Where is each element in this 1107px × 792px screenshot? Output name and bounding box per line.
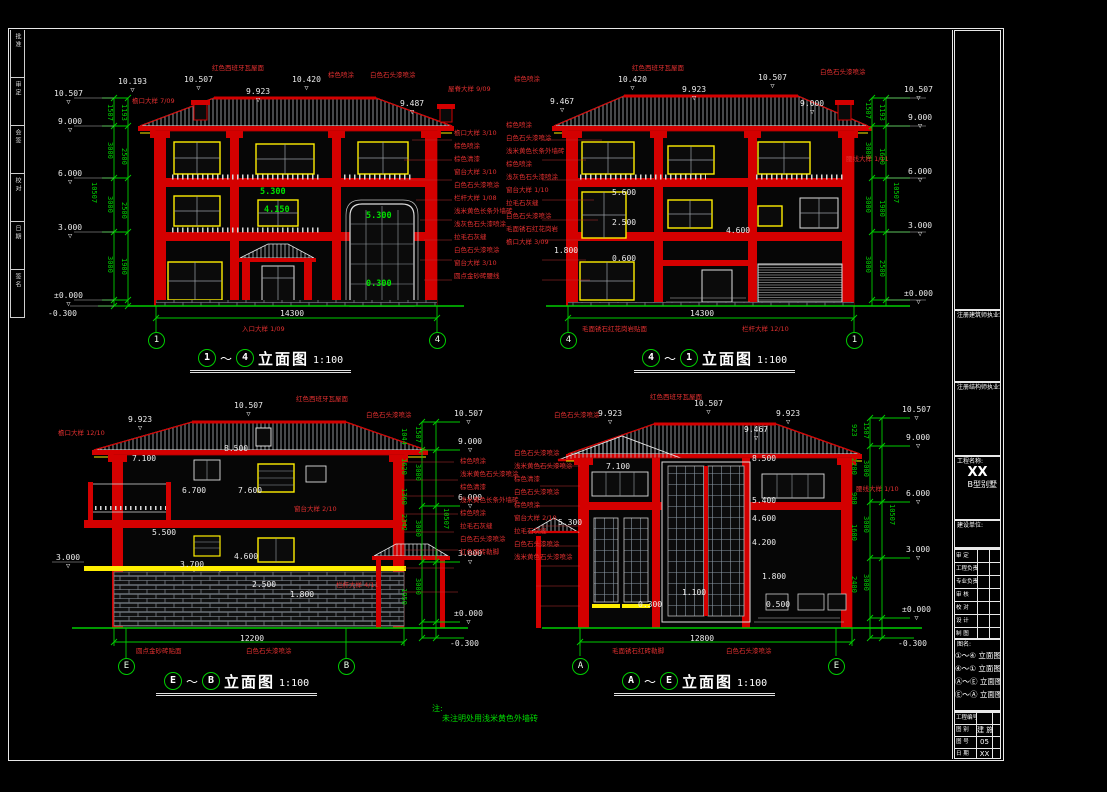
chain-dim-label: 3000 [864,256,871,273]
value-label: 4.600 [752,514,776,523]
top-dim-label: 9.000▽ [800,100,824,115]
signoff-row: 专业负责人 [955,575,1000,588]
material-callout: 白色石头漆喷涂 [370,72,416,79]
signoff-row: 校 对 [955,601,1000,614]
top-dim-label: 9.923▽ [246,88,270,103]
drawing-name-entry: Ⓔ～Ⓐ 立面图 [955,688,1000,701]
value-label: 5.600 [612,188,636,197]
level-label: -0.300 [898,640,927,648]
elevation-view-1-4: 10.193▽ 10.507▽ 9.923▽ 10.420▽ 9.487▽ 红色… [44,64,504,398]
material-callout: 白色石头漆喷涂 [460,536,510,543]
chain-dim-label: 3000 [862,574,869,591]
level-label: 9.000▽ [906,434,930,449]
view-title: 1～ 4 立面图 1:100 [190,349,351,373]
drawing-name-entry: Ⓐ～Ⓔ 立面图 [955,675,1000,688]
bottom-dim-label: 12800 [690,634,714,643]
material-callout: 棕色清漆 [514,476,556,483]
value-label: 7.100 [606,462,630,471]
value-label: 1.800 [290,590,314,599]
value-label: 4.200 [752,538,776,547]
roof-material-label: 红色西班牙瓦屋面 [632,65,684,72]
chain-dim-label: 1193 [878,104,885,121]
grid-bubble: B [202,672,220,690]
project-name-box: 工程名称: XX B型别墅 [954,456,1001,520]
signature-strip-row: 批准 [10,30,25,78]
chain-dim-label: 1507 [862,422,869,439]
drawing-sheet: 批准审定会签校对日期签名 [0,0,1107,792]
top-dim-label: 9.467▽ [550,98,574,113]
level-label: 9.000▽ [58,118,82,133]
level-label: 9.000▽ [908,114,932,129]
chain-dim-label: 2200 [850,458,857,475]
top-dim-label: 10.507▽ [184,76,213,91]
signoff-table: 审 定 工程负责人 专业负责人 审 核 [954,548,1001,639]
material-callout: 浅灰色石头漆喷涂 [454,221,504,228]
value-label: 5.300 [366,212,392,221]
material-callout-list: 白色石头漆喷涂浅米黄色石头漆喷涂棕色清漆白色石头漆喷涂棕色喷涂窗台大样 2/10… [514,450,556,561]
level-label: -0.300 [450,640,479,648]
detail-callout: 栏杆大样 4/11 [336,582,379,589]
elevation-view-A-E: 9.923▽ 10.507▽ 9.923▽ 9.467▽ 红色西班牙瓦屋面 白色… [514,396,952,700]
yellow-rail-band [84,566,406,571]
material-callout: 棕色喷涂 [328,72,354,79]
detail-callout: 入口大样 1/09 [242,326,285,333]
plinth [156,300,437,306]
chain-dim-label: 3000 [106,142,113,159]
material-callout-list: 棕色喷涂白色石头漆喷涂浅米黄色长条外墙砖棕色喷涂浅灰色石头漆喷涂窗台大样 1/1… [506,122,550,246]
detail-callout: 檐口大样 12/10 [58,430,105,437]
grid-bubble: 1 [846,332,863,349]
grid-bubble: 1 [198,349,216,367]
chain-dim-label: 3000 [414,578,421,595]
project-name: XX [955,466,1000,480]
material-callout: 拉毛石灰缝 [514,528,556,535]
architect-seal-box: 注册建筑师执业章 [954,310,1001,382]
elevation-view-4-1: 9.467▽ 10.420▽ 9.923▽ 10.507▽ 9.000▽ 红色西… [506,64,951,398]
chain-dim-label: 3000 [414,520,421,537]
value-label: 5.300 [558,518,582,527]
chain-dim-label: 2400 [850,576,857,593]
material-callout: 白色石头漆喷涂 [514,489,556,496]
material-callout: 毛面锈石红花岗岩贴面 [582,326,647,333]
material-callout: 浅灰色石头漆喷涂 [506,174,550,181]
material-callout: 浅米黄色石头漆喷涂 [514,463,556,470]
material-callout: 红色面砖勒脚 [460,549,510,556]
material-callout-list: 棕色喷涂浅米黄色石头漆喷涂棕色清漆浅米黄色长条外墙砖棕色喷涂拉毛石灰缝白色石头漆… [460,458,510,556]
chain-dim-label: 2342 [400,514,407,531]
value-label: 0.300 [638,600,662,609]
material-callout: 浅米黄色石头漆喷涂 [460,471,510,478]
top-dim-label: 10.507▽ [694,400,723,415]
chain-dim-label: 3000 [862,460,869,477]
signature-strip-row: 审定 [10,78,25,126]
material-callout: 棕色清漆 [460,484,510,491]
material-callout: 白色石头漆喷涂 [514,450,556,457]
chain-dim-label: 1600 [850,524,857,541]
grid-bubble: 4 [429,332,446,349]
value-label: 0.300 [366,280,392,289]
material-callout: 圆点金砂砖腰线 [454,273,504,280]
material-callout: 白色石头漆喷涂 [506,135,550,142]
level-label: 3.000▽ [58,224,82,239]
material-callout: 棕色喷涂 [506,122,550,129]
material-callout: 窗台大样 1/10 [506,187,550,194]
value-label: 3.700 [180,560,204,569]
signoff-row: 审 核 [955,588,1000,601]
material-callout: 浅米黄色石头漆喷涂 [514,554,556,561]
material-callout: 白色石头漆喷涂 [514,541,556,548]
title-block-blank [954,30,1001,310]
chain-dim-label: 1950 [400,588,407,605]
material-callout: 白色石头漆喷涂 [246,648,292,655]
value-label: 1.800 [554,246,578,255]
material-callout: 白色石头漆喷涂 [454,182,504,189]
value-label: 5.300 [260,188,286,197]
grid-bubble: A [572,658,589,675]
roof [558,424,862,461]
material-callout: 圆点金砂砖贴面 [136,648,182,655]
signature-strip-row: 会签 [10,126,25,174]
level-label: 9.000▽ [458,438,482,453]
chain-dim-label: 3000 [862,516,869,533]
level-label: 6.000▽ [908,168,932,183]
material-callout: 白色石头漆喷涂 [554,412,600,419]
material-callout: 白色石头漆喷涂 [820,69,866,76]
note: 注: 未注明处用浅米黄色外墙砖 [432,704,538,724]
value-label: 5.500 [152,528,176,537]
material-callout-list: 檐口大样 3/10棕色喷涂棕色清漆窗台大样 3/10白色石头漆喷涂栏杆大样 1/… [454,130,504,280]
signature-strip-row: 签名 [10,270,25,318]
material-callout: 棕色清漆 [454,156,504,163]
client-box: 建设单位: [954,520,1001,548]
note-text: 未注明处用浅米黄色外墙砖 [442,714,538,724]
grid-bubble: E [164,672,182,690]
top-dim-label: 9.487▽ [400,100,424,115]
material-callout: 白色石头漆喷涂 [506,213,550,220]
detail-callout: 窗台大样 2/10 [294,506,337,513]
value-label: 2.500 [252,580,276,589]
chain-dim-label: 2500 [878,260,885,277]
note-label: 注: [432,704,538,714]
material-callout: 棕色喷涂 [460,510,510,517]
bottom-dim-label: 14300 [280,309,304,318]
top-dim-label: 9.923▽ [128,416,152,431]
chain-dim-label: 923 [850,424,857,437]
chain-dim-label: 1620 [400,458,407,475]
material-callout: 白色石头漆喷涂 [726,648,772,655]
detail-callout: 屋脊大样 9/09 [448,86,491,93]
overall-dim-label: 10507 [90,182,97,203]
chain-dim-label: 3000 [864,196,871,213]
grid-bubble: 4 [560,332,577,349]
top-dim-label: 10.507▽ [234,402,263,417]
value-label: 7.100 [132,454,156,463]
overall-dim-label: 10507 [442,508,449,529]
top-dim-label: 10.193▽ [118,78,147,93]
roof-material-label: 红色西班牙瓦屋面 [650,394,702,401]
project-type: B型别墅 [955,480,1000,489]
view-title: 4～ 1 立面图 1:100 [634,349,795,373]
drawing-number-table: 工程编号 图 别 建 施 图 号 05 日 期 [954,711,1001,759]
chain-dim-label: 2500 [120,148,127,165]
material-callout: 拉毛石灰缝 [454,234,504,241]
material-callout: 檐口大样 3/10 [454,130,504,137]
detail-callout: 栏杆大样 12/10 [742,326,789,333]
level-label: 3.000▽ [906,546,930,561]
grid-bubble: B [338,658,355,675]
top-dim-label: 10.507▽ [758,74,787,89]
level-label: 10.507▽ [54,90,83,105]
material-callout: 拉毛石灰缝 [506,200,550,207]
value-label: 4.600 [726,226,750,235]
value-label: 4.600 [234,552,258,561]
signoff-row: 制 图 [955,627,1000,639]
chain-dim-label: 3000 [106,256,113,273]
signoff-row: 审 定 [955,549,1000,562]
signature-strip-row: 日期 [10,222,25,270]
drawing-number-row: 工程编号 [955,712,1000,724]
material-callout: 窗台大样 3/10 [454,169,504,176]
value-label: 1.100 [682,588,706,597]
view-title: E～ B 立面图 1:100 [156,672,317,696]
material-callout: 浅米黄色长条外墙砖 [506,148,550,155]
material-callout: 白色石头漆喷涂 [366,412,412,419]
material-callout: 窗台大样 2/10 [514,515,556,522]
level-label: 3.000▽ [908,222,932,237]
signoff-row: 设 计 [955,614,1000,627]
grid-bubble: 1 [148,332,165,349]
stair-window-stack [662,462,750,622]
level-label: 3.000▽ [56,554,80,569]
chain-dim-label: 3000 [414,464,421,481]
drawing-number-row: 图 别 建 施 [955,724,1000,736]
chain-dim-label: 1360 [400,488,407,505]
detail-callout: 腰线大样 1/10 [856,486,899,493]
level-label: ±0.000▽ [904,290,933,305]
chain-dim-label: 1900 [120,258,127,275]
material-callout: 棕色喷涂 [506,161,550,168]
chain-dim-label: 1900 [878,200,885,217]
drawing-name-box: 图名: ①～④ 立面图④～① 立面图Ⓐ～Ⓔ 立面图Ⓔ～Ⓐ 立面图 [954,639,1001,711]
chain-dim-label: 1507 [414,426,421,443]
roof-material-label: 红色西班牙瓦屋面 [296,396,348,403]
chain-dim-label: 1193 [120,104,127,121]
material-callout: 白色石头漆喷涂 [454,247,504,254]
chain-dim-label: 900 [850,492,857,505]
grid-bubble: 4 [236,349,254,367]
value-label: 8.500 [752,454,776,463]
value-label: 6.700 [182,486,206,495]
level-label: -0.300 [48,310,77,318]
title-column-divider [952,30,953,759]
level-label: 10.507▽ [454,410,483,425]
level-label: ±0.000▽ [454,610,483,625]
material-callout: 棕色喷涂 [514,76,540,83]
value-label: 0.600 [612,254,636,263]
signoff-row: 工程负责人 [955,562,1000,575]
drawing-number-row: 图 号 05 [955,736,1000,748]
detail-callout: 檐口大样 7/09 [132,98,175,105]
top-dim-label: 10.420▽ [618,76,647,91]
material-callout: 棕色喷涂 [454,143,504,150]
level-label: ±0.000▽ [902,606,931,621]
chain-dim-label: 3000 [106,196,113,213]
value-label: 0.500 [766,600,790,609]
left-signature-strip: 批准审定会签校对日期签名 [10,30,37,318]
bottom-dim-label: 12200 [240,634,264,643]
window-first-floor [168,262,222,300]
roof-material-label: 红色西班牙瓦屋面 [212,65,264,72]
level-label: 6.000▽ [58,170,82,185]
material-callout: 拉毛石灰缝 [460,523,510,530]
material-callout: 檐口大样 3/09 [506,239,550,246]
grid-bubble: 1 [680,349,698,367]
value-label: 7.600 [238,486,262,495]
chain-dim-label: 1507 [864,102,871,119]
top-dim-label: 9.467▽ [744,426,768,441]
grid-bubble: E [660,672,678,690]
material-callout: 毛面锈石红花岗岩 [506,226,550,233]
overall-dim-label: 10507 [892,182,899,203]
material-callout: 浅米黄色长条外墙砖 [460,497,510,504]
material-callout: 栏杆大样 1/08 [454,195,504,202]
signature-strip-row: 校对 [10,174,25,222]
material-callout: 浅米黄色长条外墙砖 [454,208,504,215]
level-label: ±0.000▽ [54,292,83,307]
view-title: A～ E 立面图 1:100 [614,672,775,696]
structural-seal-box: 注册结构师执业章 [954,382,1001,456]
level-label: 10.507▽ [904,86,933,101]
grid-bubble: A [622,672,640,690]
value-label: 4.150 [264,206,290,215]
top-dim-label: 9.923▽ [776,410,800,425]
value-label: 1.800 [762,572,786,581]
level-label: 6.000▽ [906,490,930,505]
value-label: 8.500 [224,444,248,453]
level-label: 10.507▽ [902,406,931,421]
value-label: 5.400 [752,496,776,505]
top-dim-label: 10.420▽ [292,76,321,91]
elevation-view-E-B: 9.923▽ 10.507▽ 红色西班牙瓦屋面 白色石头漆喷涂 檐口大样 12/… [44,396,510,700]
grid-bubble: E [828,658,845,675]
bottom-dim-label: 14300 [690,309,714,318]
chain-dim-label: 2500 [120,202,127,219]
material-callout: 毛面锈石红砖勒脚 [612,648,664,655]
material-callout: 棕色喷涂 [460,458,510,465]
chain-dim-label: 1044 [400,428,407,445]
material-callout: 窗台大样 3/10 [454,260,504,267]
top-dim-label: 9.923▽ [598,410,622,425]
drawing-name-entry: ①～④ 立面图 [955,649,1000,662]
material-callout: 棕色喷涂 [514,502,556,509]
drawing-number-row: 日 期 XX [955,748,1000,759]
grid-bubble: E [118,658,135,675]
chain-dim-label: 1507 [106,104,113,121]
overall-dim-label: 10507 [888,504,895,525]
grid-bubble: 4 [642,349,660,367]
value-label: 2.500 [612,218,636,227]
top-dim-label: 9.923▽ [682,86,706,101]
drawing-name-entry: ④～① 立面图 [955,662,1000,675]
detail-callout: 腰线大样 1/11 [846,156,889,163]
